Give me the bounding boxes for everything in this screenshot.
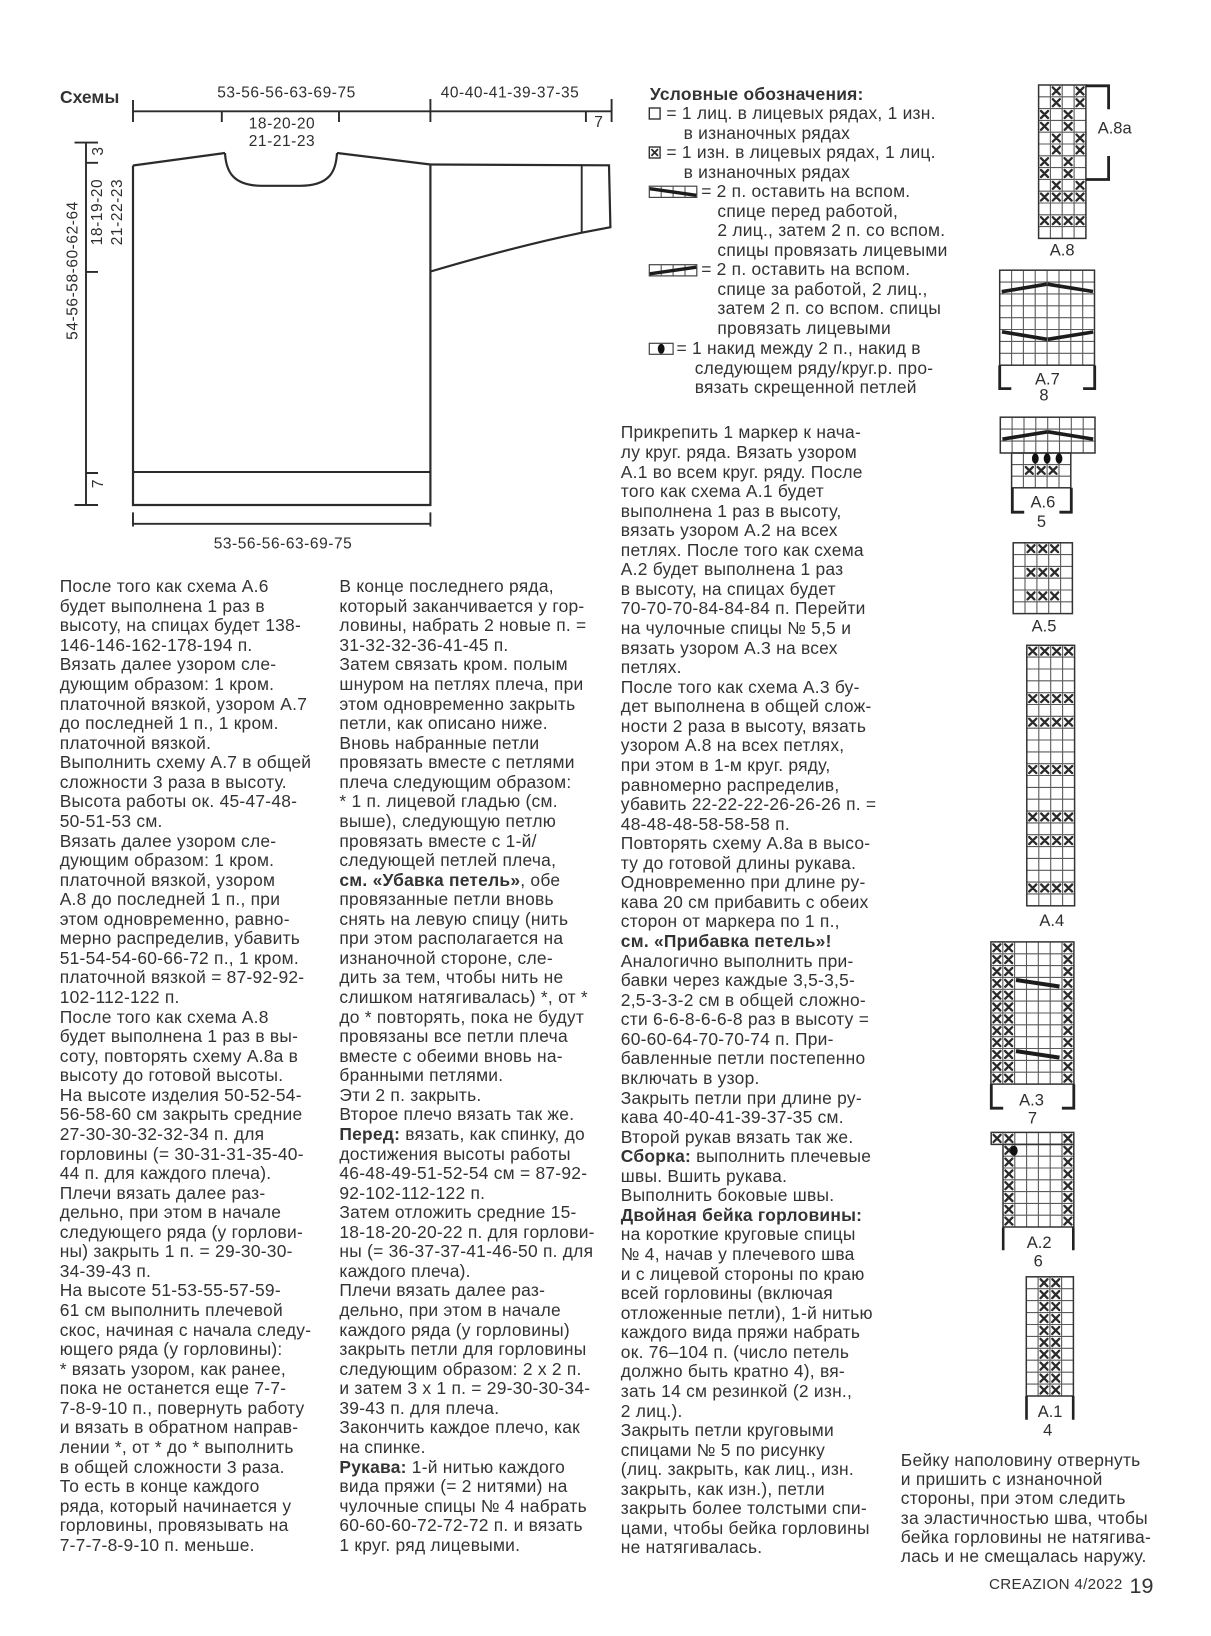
svg-text:54-56-58-60-62-64: 54-56-58-60-62-64 <box>65 201 82 340</box>
svg-text:A.4: A.4 <box>1039 912 1064 930</box>
svg-text:7: 7 <box>90 479 107 488</box>
svg-text:40-40-41-39-37-35: 40-40-41-39-37-35 <box>441 85 580 102</box>
svg-text:5: 5 <box>1037 513 1046 531</box>
svg-text:A.8a: A.8a <box>1098 119 1133 137</box>
svg-text:18-20-20: 18-20-20 <box>249 115 315 132</box>
svg-text:7: 7 <box>1028 1110 1037 1128</box>
svg-text:A.8: A.8 <box>1050 241 1075 259</box>
svg-text:53-56-56-63-69-75: 53-56-56-63-69-75 <box>214 536 353 553</box>
svg-text:A.6: A.6 <box>1031 494 1056 512</box>
svg-text:21-22-23: 21-22-23 <box>109 179 126 245</box>
svg-text:A.1: A.1 <box>1038 1403 1063 1421</box>
svg-text:A.2: A.2 <box>1027 1234 1052 1252</box>
svg-text:3: 3 <box>90 146 107 155</box>
svg-text:6: 6 <box>1034 1252 1043 1270</box>
svg-text:21-21-23: 21-21-23 <box>249 133 315 150</box>
svg-text:53-56-56-63-69-75: 53-56-56-63-69-75 <box>217 85 356 102</box>
svg-text:7: 7 <box>594 114 603 131</box>
svg-text:18-19-20: 18-19-20 <box>89 179 106 245</box>
svg-text:A.3: A.3 <box>1019 1091 1044 1109</box>
svg-text:A.5: A.5 <box>1032 617 1057 635</box>
svg-text:8: 8 <box>1039 387 1048 405</box>
svg-text:4: 4 <box>1043 1421 1052 1439</box>
